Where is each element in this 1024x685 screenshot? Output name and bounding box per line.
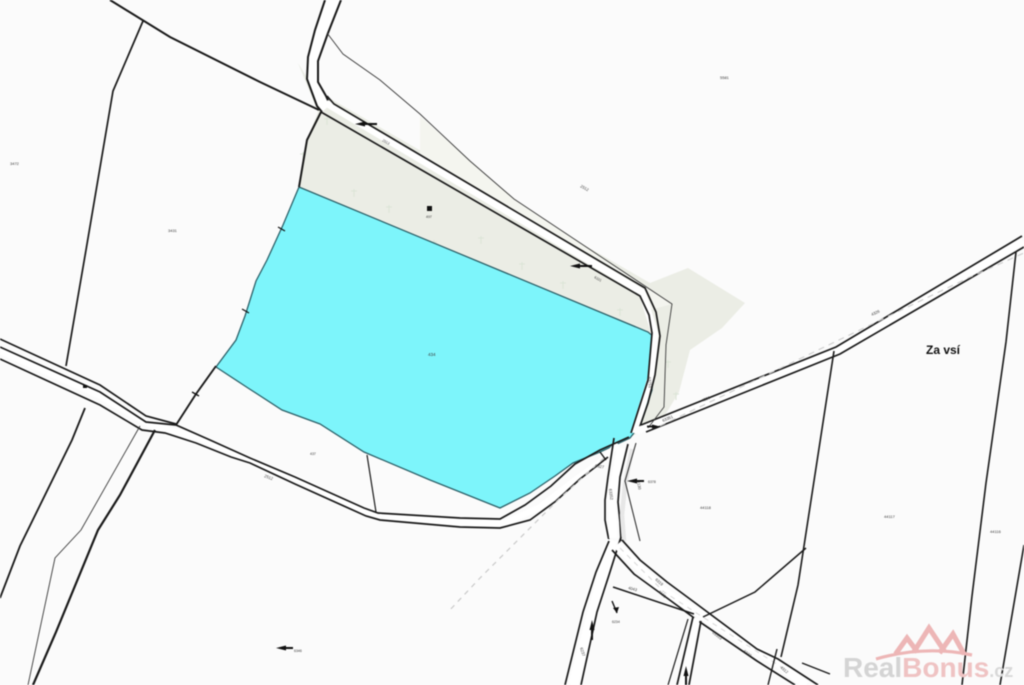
svg-text:3431: 3431 [168, 228, 178, 233]
svg-text:44117: 44117 [884, 514, 896, 519]
svg-text:44116: 44116 [990, 529, 1002, 534]
svg-text:497: 497 [426, 215, 432, 219]
svg-text:RealBonus.cz: RealBonus.cz [843, 652, 1013, 683]
svg-text:437: 437 [310, 452, 316, 456]
svg-text:434: 434 [428, 352, 436, 357]
svg-text:44118: 44118 [700, 505, 712, 510]
svg-text:3472: 3472 [10, 161, 20, 166]
svg-text:63751: 63751 [647, 377, 653, 389]
svg-text:6378: 6378 [648, 480, 656, 484]
svg-text:5581: 5581 [720, 75, 730, 80]
svg-text:6234: 6234 [612, 620, 620, 624]
svg-text:6346: 6346 [294, 649, 302, 653]
svg-text:Za vsí: Za vsí [926, 343, 961, 357]
